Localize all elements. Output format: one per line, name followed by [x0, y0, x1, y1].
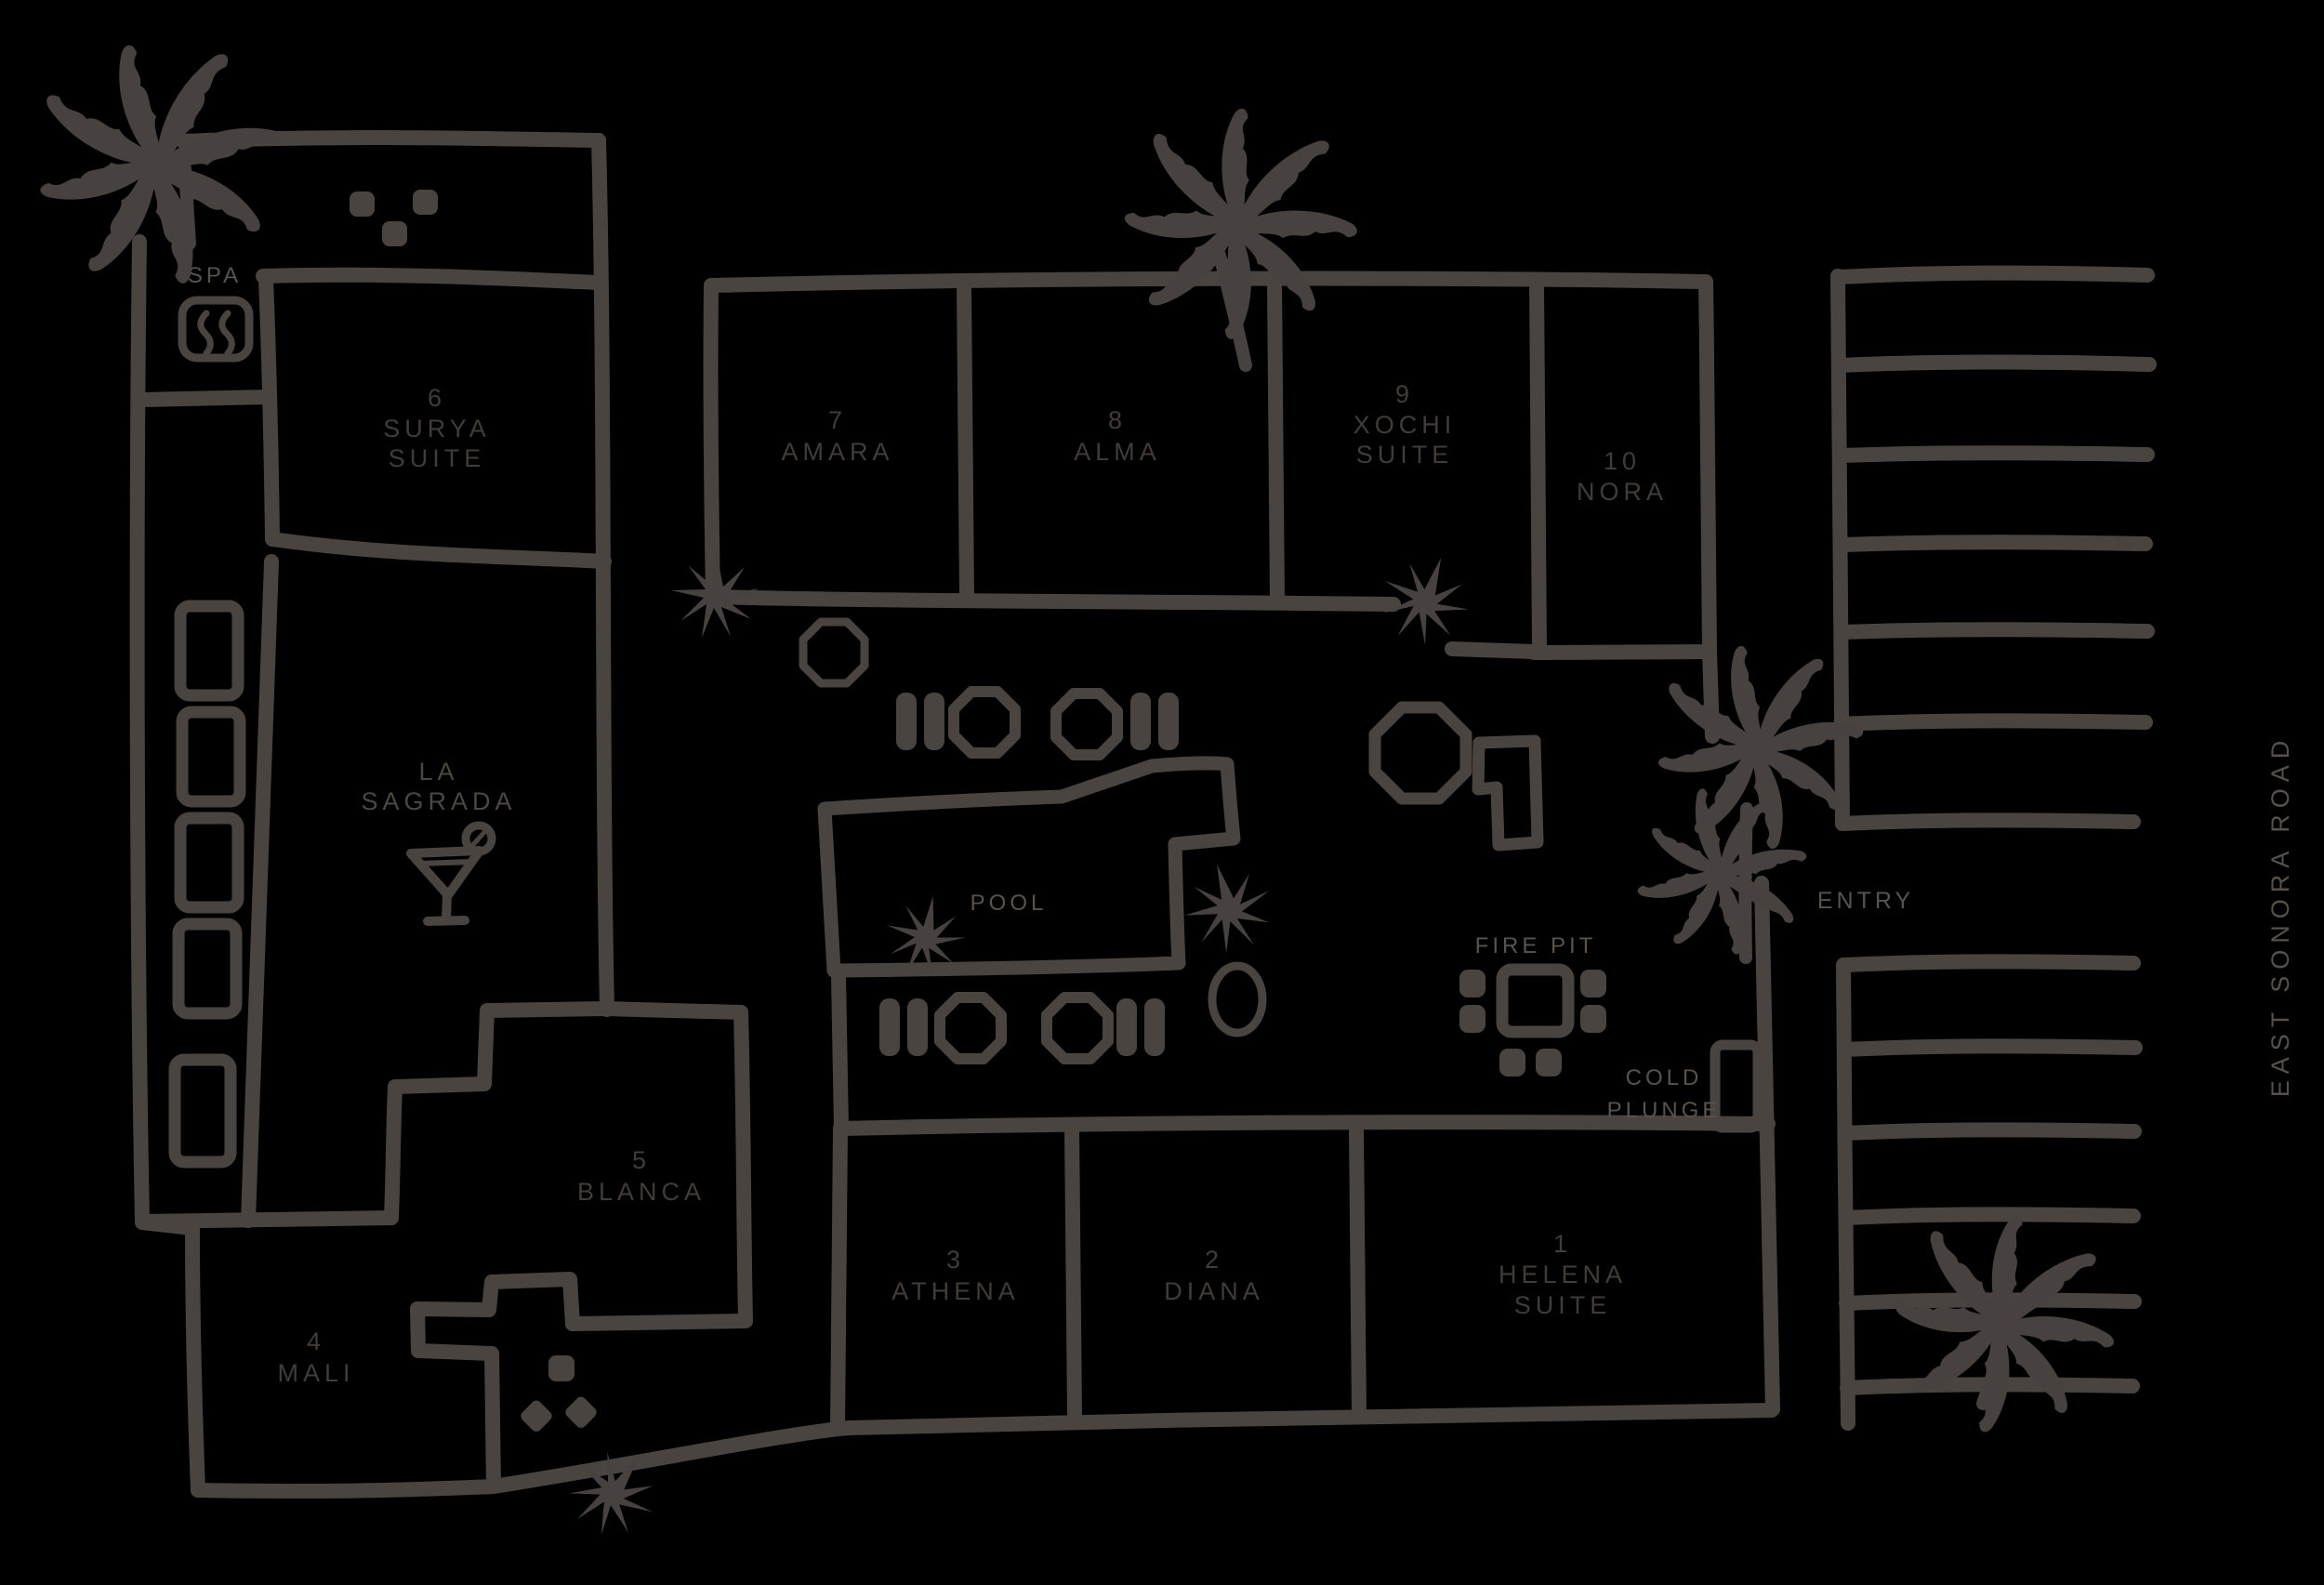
parking-space-line: [1842, 820, 2133, 824]
lounge-chair-icon: [1116, 998, 1137, 1056]
parking-space-line: [1844, 961, 2133, 965]
room-label-diana: 2 DIANA: [1164, 1246, 1264, 1305]
parking-space-line: [1842, 629, 2147, 632]
wall-east-boundary: [1762, 883, 1773, 1409]
parking-space-line: [1841, 363, 2149, 366]
room-name: BLANCA: [577, 1178, 706, 1206]
bar-label-line1: LA: [418, 758, 458, 786]
cold-plunge-label-line2: PLUNGE: [1607, 1098, 1722, 1123]
room-name: NORA: [1577, 478, 1668, 506]
wall-mali-steps: [417, 1309, 494, 1486]
resort-site-map: POOL FIRE PIT COLD PLUNGE: [0, 0, 2324, 1585]
room-name: AMARA: [781, 438, 893, 466]
wall-top-building-bottom-right: [1452, 649, 1534, 652]
road-label: EAST SONORA ROAD: [2266, 734, 2294, 1098]
dining-table-icon: [803, 622, 865, 683]
room-name: DIANA: [1164, 1277, 1264, 1305]
wall-room6-left: [266, 279, 272, 539]
fire-pit-icon: FIRE PIT: [1459, 933, 1606, 1076]
palm-tree-icon: [1110, 95, 1372, 365]
spa-area: SPA: [182, 263, 249, 358]
room-label-mali: 4 MALI: [277, 1327, 354, 1387]
stepping-stone-icon: [382, 221, 407, 246]
agave-icon: [671, 549, 759, 638]
room-suffix: SUITE: [1514, 1291, 1612, 1319]
wall-mali-connector: [142, 1222, 192, 1228]
wall-pool-deck: [838, 974, 841, 1129]
room-name: MALI: [277, 1359, 354, 1387]
steam-icon: [182, 300, 249, 358]
room-number: 2: [1205, 1246, 1223, 1274]
parking-space-line: [1846, 1214, 2133, 1218]
fire-pit-label: FIRE PIT: [1475, 933, 1597, 958]
stepping-stone-icon: [519, 1398, 554, 1433]
fire-pit-seat: [1499, 1049, 1525, 1076]
room-label-amara: 7 AMARA: [781, 406, 893, 466]
wall-strip-bottom: [263, 275, 598, 283]
pool-outline: [825, 763, 1234, 971]
fire-pit-seat: [1580, 1005, 1606, 1033]
stepping-stone-icon: [563, 1394, 599, 1430]
room-label-blanca: 5 BLANCA: [577, 1146, 706, 1206]
wall-steps-courtyard: [391, 1009, 604, 1218]
hot-tub-ring: [1375, 707, 1466, 799]
spa-treatment-rooms: [175, 606, 240, 1162]
cold-plunge-label-line1: COLD: [1626, 1065, 1703, 1090]
agave-icon: [552, 1430, 675, 1552]
room-label-athena: 3 ATHENA: [891, 1246, 1020, 1305]
site-map-canvas: POOL FIRE PIT COLD PLUNGE: [0, 0, 2324, 1585]
wall-rooms123-top: [840, 1122, 1768, 1129]
wall-divider-diana-helena: [1356, 1125, 1359, 1413]
room-number: 9: [1395, 380, 1414, 408]
wall-top-building-bottom-left: [713, 597, 1393, 604]
lounge-chair-icon: [1144, 998, 1165, 1056]
cold-plunge-icon: COLD PLUNGE: [1607, 1045, 1758, 1128]
room-name: ALMA: [1074, 438, 1161, 466]
room-number: 7: [828, 406, 847, 434]
treatment-bed: [180, 818, 238, 907]
palm-tree-icon: [22, 26, 299, 301]
treatment-bed: [182, 712, 240, 801]
fire-pit-seat: [1459, 1005, 1486, 1033]
fire-pit-seat: [1580, 970, 1606, 997]
stepping-stone-icon: [350, 192, 375, 217]
wall-blanca-right: [741, 1012, 746, 1321]
stepping-stone-icon: [413, 190, 438, 215]
pool-area: POOL: [825, 763, 1234, 971]
room-number: 3: [946, 1246, 965, 1274]
dining-table-icon: [1056, 693, 1117, 755]
palm-tree-icon: [1606, 638, 1871, 992]
cold-plunge-basin: [1715, 1045, 1758, 1128]
treatment-bed: [180, 606, 238, 695]
side-table-icon: [1212, 966, 1262, 1033]
fire-pit-seat: [1459, 970, 1486, 997]
lounge-chair-icon: [1158, 693, 1179, 750]
room-suffix: SUITE: [389, 444, 486, 472]
fire-pit-ring: [1502, 970, 1568, 1032]
room-label-surya: 6 SURYA SUITE: [383, 384, 491, 472]
room-name: XOCHI: [1353, 411, 1457, 439]
dining-table-icon: [940, 997, 1001, 1059]
wall-blanca-top: [604, 1009, 741, 1012]
wall-divider-alma-xochi: [1274, 283, 1277, 599]
hot-tub-icon: [1375, 707, 1538, 845]
treatment-bed: [175, 1060, 231, 1162]
room-suffix: SUITE: [1356, 441, 1454, 469]
parking-space-line: [1845, 1046, 2135, 1050]
wall-mali-left: [192, 1228, 198, 1490]
lounge-chair-icon: [896, 693, 917, 750]
room-number: 1: [1553, 1230, 1572, 1258]
wall-left-right-edge: [599, 140, 607, 1010]
room-name: SURYA: [383, 415, 491, 442]
wall-blanca-bottom: [573, 1321, 746, 1324]
dining-table-icon: [954, 692, 1015, 753]
parking-space-line: [1841, 453, 2147, 456]
palm-tree-icon: [1871, 1192, 2138, 1457]
lounge-chair-icon: [907, 998, 928, 1056]
wall-room6-bottom: [272, 539, 604, 561]
room-number: 6: [428, 384, 446, 412]
hot-tub-steps: [1478, 741, 1538, 845]
martini-glass-icon: [411, 826, 492, 921]
wall-divider-athena-diana: [1072, 1126, 1075, 1416]
room-name: HELENA: [1499, 1261, 1627, 1288]
pool-label: POOL: [971, 891, 1048, 916]
la-sagrada-bar: LA SAGRADA: [361, 758, 516, 921]
parking-lot: [1838, 273, 2149, 1423]
room-label-nora: 10 NORA: [1577, 447, 1668, 506]
wall-blanca-steps: [417, 1279, 573, 1324]
wall-spa-nook: [141, 397, 270, 400]
room-label-xochi: 9 XOCHI SUITE: [1353, 380, 1457, 469]
room-label-alma: 8 ALMA: [1074, 406, 1161, 466]
room-number: 5: [632, 1146, 651, 1174]
treatment-bed: [178, 924, 236, 1013]
lounge-chair-icon: [924, 693, 944, 750]
bar-label-line2: SAGRADA: [361, 787, 516, 815]
wall-rooms123-left: [838, 1129, 840, 1429]
wall-left-outer: [138, 242, 142, 1222]
room-number: 4: [307, 1327, 325, 1355]
lounge-chair-icon: [1130, 693, 1151, 750]
wall-lounger-strip-divider: [248, 561, 271, 1221]
lounge-chair-icon: [879, 998, 900, 1056]
parking-spine-bottom: [1843, 965, 1848, 1423]
agave-icon: [1174, 853, 1282, 961]
parking-space-line: [1840, 273, 2147, 277]
wall-divider-amara-alma: [964, 284, 967, 596]
fire-pit-seat: [1536, 1049, 1562, 1076]
parking-space-line: [1842, 542, 2146, 545]
dining-table-icon: [1047, 997, 1108, 1059]
parking-space-line: [1842, 720, 2146, 724]
room-label-helena: 1 HELENA SUITE: [1499, 1230, 1627, 1319]
spa-label: SPA: [188, 263, 242, 288]
wall-bottom-boundary: [198, 1410, 1772, 1491]
entry-label: ENTRY: [1817, 888, 1914, 914]
room-number: 8: [1108, 406, 1127, 434]
room-number: 10: [1604, 447, 1641, 475]
parking-space-line: [1845, 1129, 2134, 1133]
wall-divider-xochi-nora: [1537, 282, 1539, 651]
stepping-stone-icon: [548, 1355, 574, 1381]
room-name: ATHENA: [891, 1277, 1020, 1305]
